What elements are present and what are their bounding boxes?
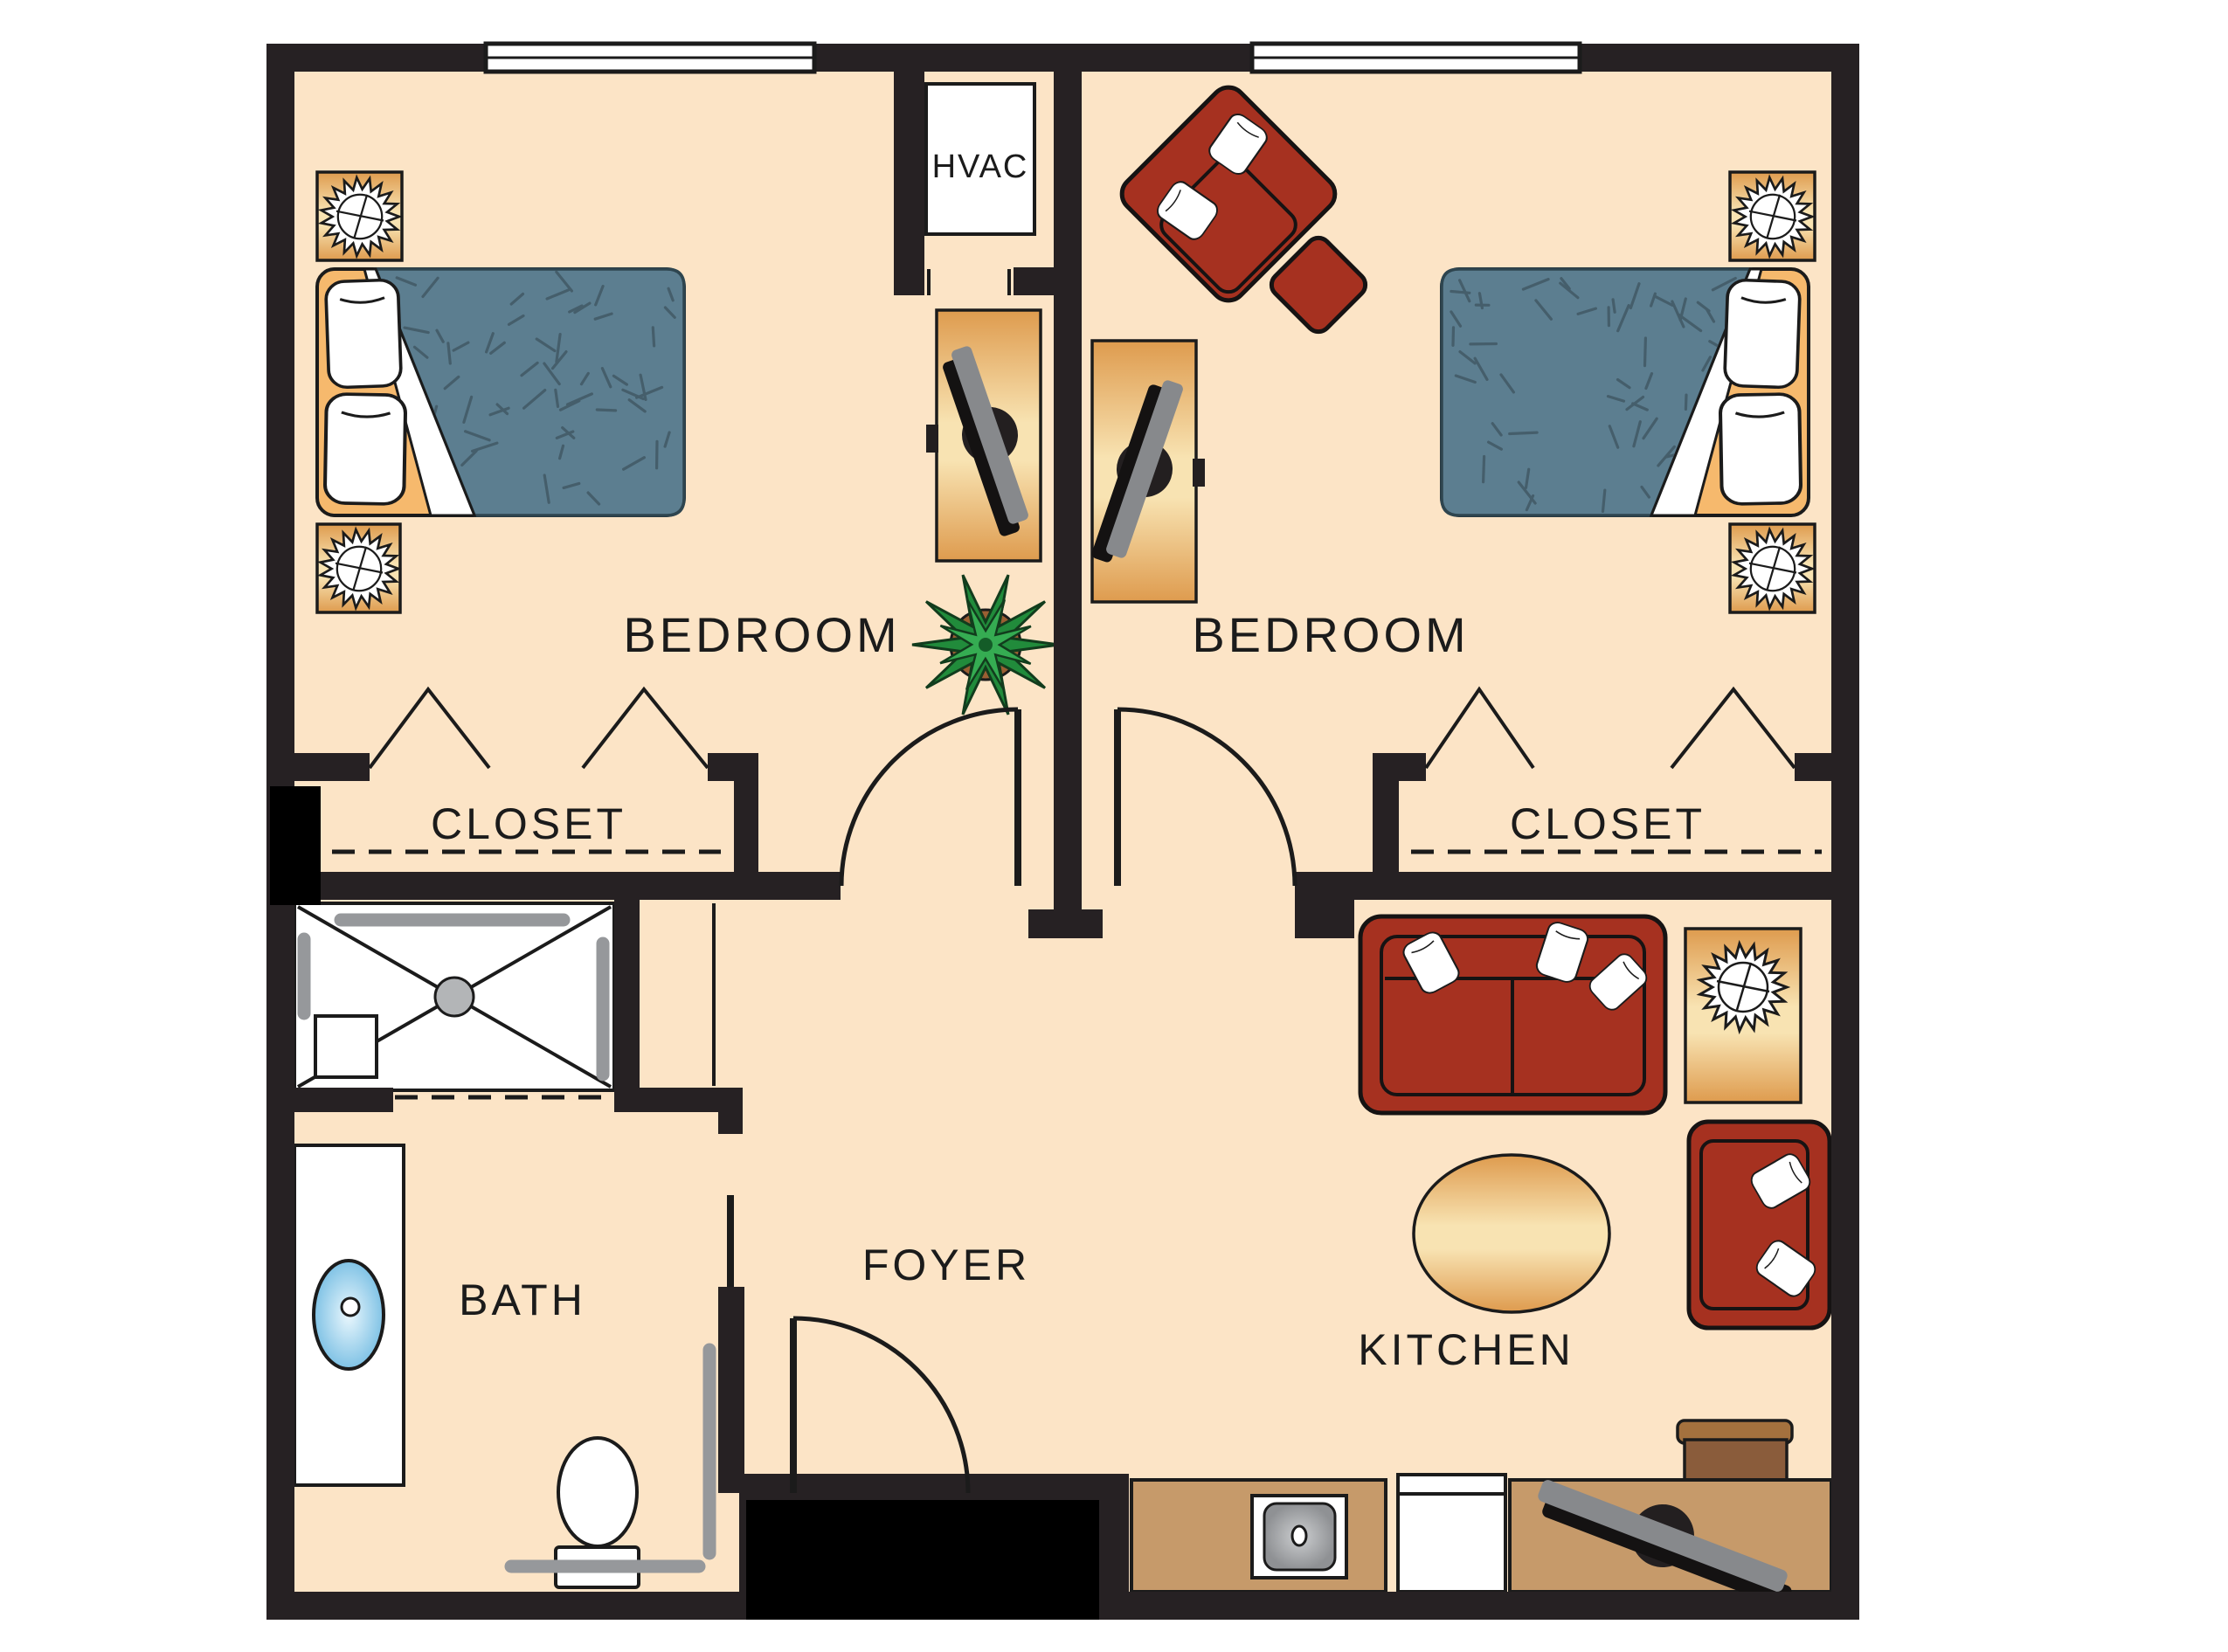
coffee-table-icon [1414, 1155, 1609, 1312]
shower-seat-icon [315, 1016, 377, 1077]
bed-right-icon [1442, 269, 1809, 515]
dresser-tv-icon [1085, 341, 1205, 602]
armchair-icon [1689, 1122, 1830, 1328]
side-table-icon [1685, 929, 1801, 1102]
room-label-bedroom-right: BEDROOM [1192, 607, 1469, 662]
loveseat-icon [1360, 916, 1665, 1113]
room-label-bedroom-left: BEDROOM [623, 607, 900, 662]
shower-drain-icon [435, 978, 474, 1016]
nightstand-icon [317, 524, 400, 612]
nightstand-icon [1730, 172, 1815, 260]
room-label-closet-right: CLOSET [1510, 799, 1706, 848]
desk-chair-icon [1678, 1420, 1792, 1482]
bed-left-icon [317, 269, 684, 515]
room-label-foyer: FOYER [862, 1241, 1030, 1289]
page: HVAC BEDROOM BEDROOM CLOSET CLOSET BATH … [0, 0, 2228, 1652]
room-label-closet-left: CLOSET [431, 799, 626, 848]
nightstand-icon [1730, 524, 1815, 612]
refrigerator-icon [1398, 1475, 1505, 1592]
window-icon [486, 44, 814, 72]
room-label-bath: BATH [459, 1275, 586, 1324]
shower-icon [294, 903, 614, 1097]
room-label-kitchen: KITCHEN [1358, 1325, 1574, 1374]
chase [270, 786, 321, 905]
dresser-tv-icon [926, 310, 1049, 561]
kitchen-counter-sink [1131, 1480, 1386, 1592]
floor-plan: HVAC BEDROOM BEDROOM CLOSET CLOSET BATH … [0, 0, 2228, 1652]
vanity-icon [294, 1145, 404, 1485]
nightstand-icon [317, 172, 402, 260]
window-icon [1252, 44, 1580, 72]
hvac-label: HVAC [932, 149, 1029, 185]
